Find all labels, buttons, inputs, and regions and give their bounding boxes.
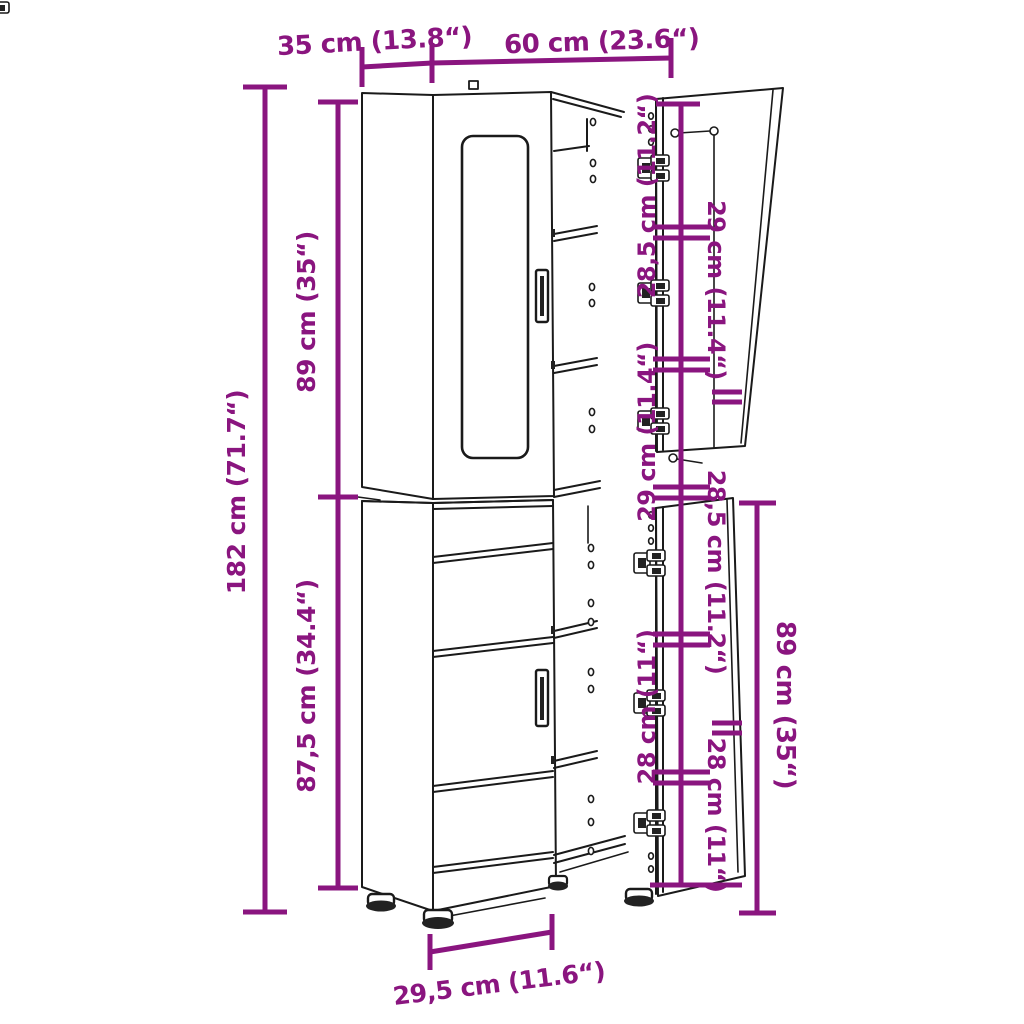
dim-label-gap-left-2: 29 cm (11.4“) [633, 342, 661, 522]
door-hinges [0, 0, 669, 836]
lower-door-handle [536, 670, 548, 726]
dim-label-lower-height: 87,5 cm (34.4“) [292, 579, 321, 792]
cabinet-dimension-drawing: 35 cm (13.8“) 60 cm (23.6“) 182 cm (71.7… [0, 0, 1024, 1024]
dim-label-door-height: 89 cm (35“) [770, 621, 800, 789]
dim-label-depth: 35 cm (13.8“) [276, 22, 473, 62]
dim-label-gap-left-3: 28 cm (11“) [633, 630, 661, 785]
dim-label-upper-height: 89 cm (35“) [292, 231, 321, 393]
dim-label-gap-right-3: 28 cm (11“) [702, 738, 730, 893]
dim-label-gap-left-1: 28,5 cm (11.2“) [633, 94, 661, 299]
dim-label-total-height: 182 cm (71.7“) [222, 390, 251, 594]
dim-label-gap-right-1: 29 cm (11.4“) [702, 200, 730, 380]
dim-label-gap-right-2: 28,5 cm (11.2“) [702, 470, 730, 675]
upper-unit-body [362, 81, 624, 499]
diagram-canvas: 35 cm (13.8“) 60 cm (23.6“) 182 cm (71.7… [0, 0, 1024, 1024]
upper-door-handle [536, 270, 548, 322]
dim-label-base-depth: 29,5 cm (11.6“) [391, 956, 606, 1011]
lower-open-door [656, 498, 745, 896]
section-height-dimension [318, 102, 358, 888]
